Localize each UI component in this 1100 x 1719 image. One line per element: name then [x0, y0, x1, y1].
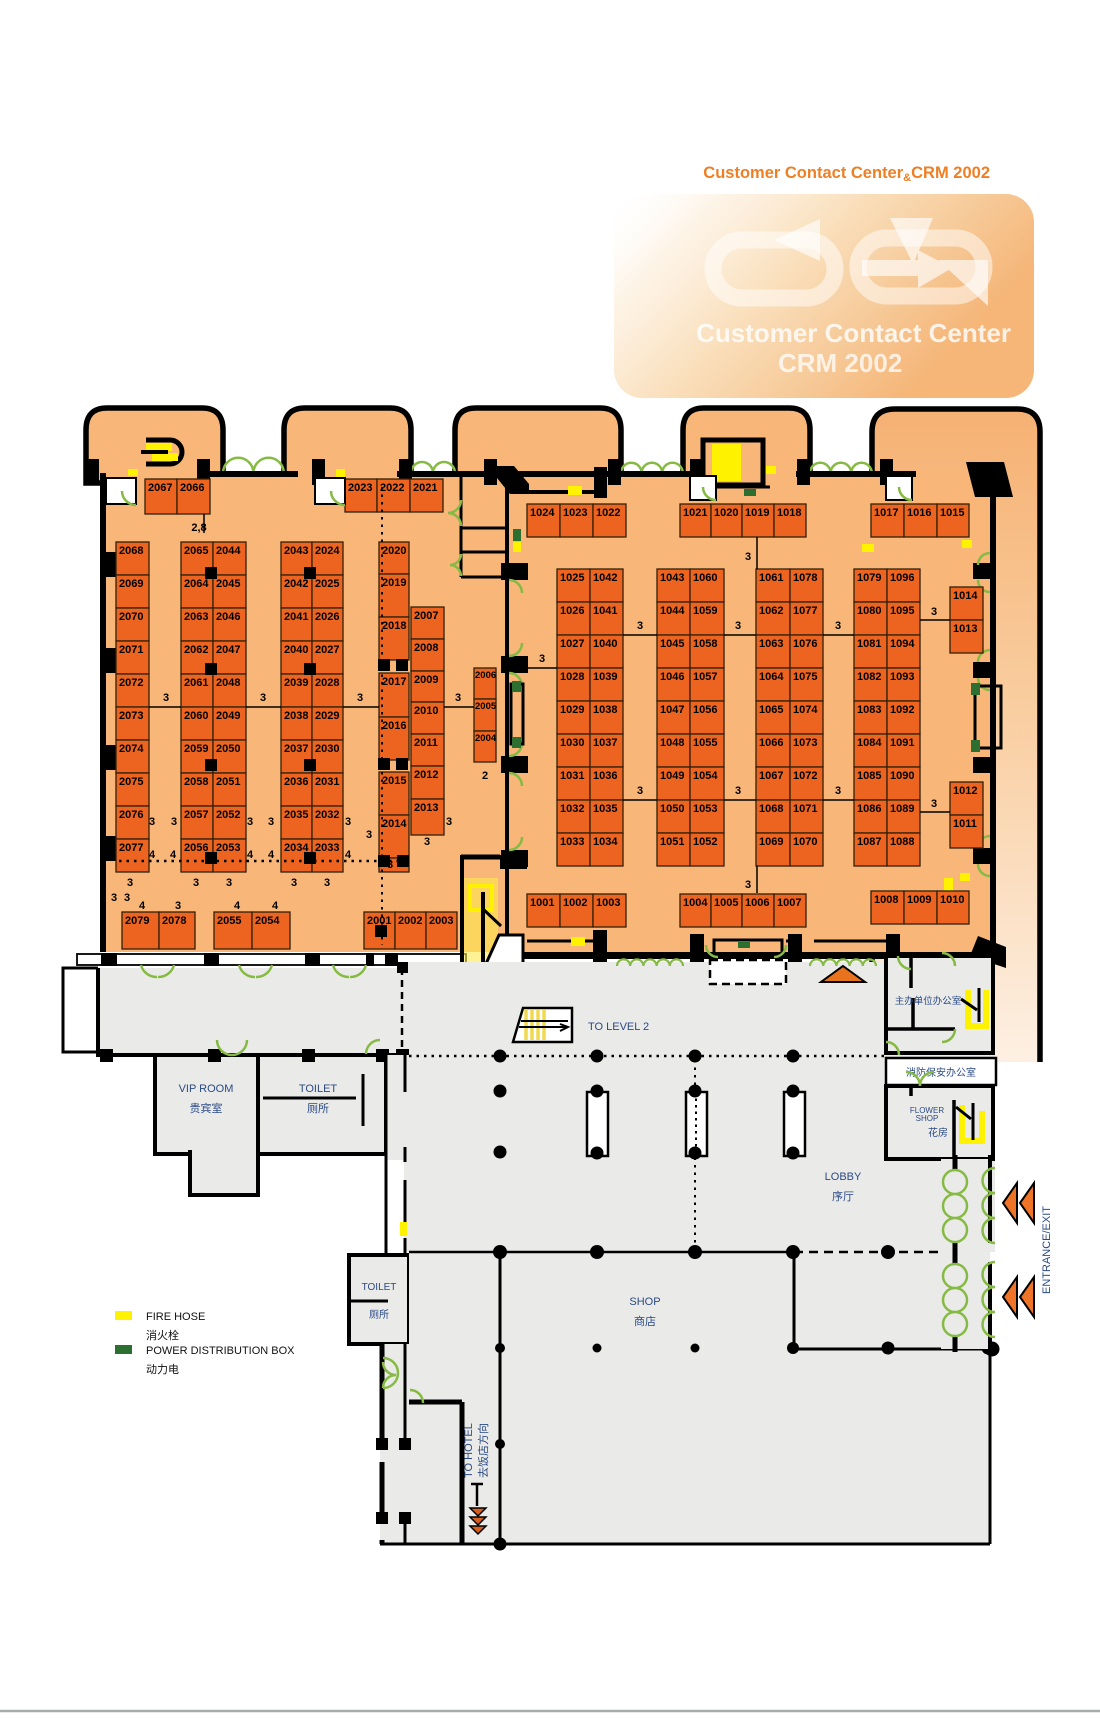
- svg-text:厕所: 厕所: [307, 1102, 329, 1115]
- svg-text:3: 3: [637, 620, 643, 632]
- svg-text:2065: 2065: [184, 545, 208, 557]
- svg-text:2010: 2010: [414, 705, 438, 717]
- svg-text:1041: 1041: [593, 605, 617, 617]
- svg-text:2079: 2079: [125, 915, 149, 927]
- svg-text:2,8: 2,8: [191, 522, 206, 534]
- svg-text:1088: 1088: [890, 836, 914, 848]
- svg-text:1059: 1059: [693, 605, 717, 617]
- svg-text:1060: 1060: [693, 572, 717, 584]
- svg-text:1007: 1007: [777, 897, 801, 909]
- svg-text:4: 4: [345, 849, 352, 861]
- svg-text:1073: 1073: [793, 737, 817, 749]
- svg-text:2017: 2017: [382, 676, 406, 688]
- svg-text:2031: 2031: [315, 776, 339, 788]
- svg-text:2038: 2038: [284, 710, 308, 722]
- svg-text:1075: 1075: [793, 671, 817, 683]
- svg-text:2032: 2032: [315, 809, 339, 821]
- svg-text:2027: 2027: [315, 644, 339, 656]
- svg-text:LOBBY: LOBBY: [825, 1171, 862, 1183]
- svg-text:2024: 2024: [315, 545, 340, 557]
- svg-text:2002: 2002: [398, 915, 422, 927]
- svg-text:3: 3: [387, 859, 393, 871]
- svg-text:2045: 2045: [216, 578, 240, 590]
- svg-text:4: 4: [272, 900, 279, 912]
- svg-text:2039: 2039: [284, 677, 308, 689]
- svg-text:1012: 1012: [953, 785, 977, 797]
- svg-text:2052: 2052: [216, 809, 240, 821]
- svg-text:3: 3: [268, 816, 274, 828]
- svg-text:1094: 1094: [890, 638, 915, 650]
- svg-text:2048: 2048: [216, 677, 240, 689]
- svg-text:3: 3: [637, 785, 643, 797]
- svg-text:2051: 2051: [216, 776, 240, 788]
- svg-text:1085: 1085: [857, 770, 881, 782]
- svg-text:1071: 1071: [793, 803, 817, 815]
- svg-text:1017: 1017: [874, 507, 898, 519]
- svg-text:2068: 2068: [119, 545, 143, 557]
- svg-text:2021: 2021: [413, 482, 437, 494]
- svg-text:厕所: 厕所: [369, 1309, 389, 1321]
- svg-text:2029: 2029: [315, 710, 339, 722]
- svg-text:1009: 1009: [907, 894, 931, 906]
- svg-text:CRM 2002: CRM 2002: [778, 348, 902, 378]
- svg-text:2069: 2069: [119, 578, 143, 590]
- svg-text:1056: 1056: [693, 704, 717, 716]
- svg-text:2003: 2003: [429, 915, 453, 927]
- svg-text:2020: 2020: [382, 545, 406, 557]
- svg-text:1070: 1070: [793, 836, 817, 848]
- svg-text:2018: 2018: [382, 620, 406, 632]
- svg-text:2042: 2042: [284, 578, 308, 590]
- svg-text:2054: 2054: [255, 915, 280, 927]
- svg-text:3: 3: [745, 551, 751, 563]
- svg-text:1036: 1036: [593, 770, 617, 782]
- svg-text:Customer Contact Center&CRM 20: Customer Contact Center&CRM 2002: [703, 164, 990, 184]
- svg-text:1089: 1089: [890, 803, 914, 815]
- svg-text:ENTRANCE/EXIT: ENTRANCE/EXIT: [1041, 1206, 1053, 1294]
- svg-text:1051: 1051: [660, 836, 684, 848]
- svg-text:1008: 1008: [874, 894, 898, 906]
- svg-text:2004: 2004: [475, 733, 497, 744]
- svg-text:1029: 1029: [560, 704, 584, 716]
- svg-text:TOILET: TOILET: [362, 1282, 397, 1293]
- svg-text:1034: 1034: [593, 836, 618, 848]
- svg-text:1010: 1010: [940, 894, 964, 906]
- svg-text:2067: 2067: [148, 482, 172, 494]
- svg-text:2066: 2066: [180, 482, 204, 494]
- svg-text:2043: 2043: [284, 545, 308, 557]
- svg-text:2008: 2008: [414, 642, 438, 654]
- svg-text:TO HOTEL: TO HOTEL: [463, 1423, 475, 1478]
- svg-text:1044: 1044: [660, 605, 685, 617]
- svg-text:1022: 1022: [596, 507, 620, 519]
- svg-text:FIRE HOSE: FIRE HOSE: [146, 1311, 205, 1323]
- svg-text:2050: 2050: [216, 743, 240, 755]
- svg-text:2011: 2011: [414, 737, 438, 749]
- svg-text:3: 3: [324, 877, 330, 889]
- svg-text:4: 4: [139, 900, 146, 912]
- svg-text:2044: 2044: [216, 545, 241, 557]
- svg-text:2064: 2064: [184, 578, 209, 590]
- svg-text:2074: 2074: [119, 743, 144, 755]
- svg-text:2014: 2014: [382, 818, 407, 830]
- svg-text:2040: 2040: [284, 644, 308, 656]
- svg-text:2036: 2036: [284, 776, 308, 788]
- svg-text:1055: 1055: [693, 737, 717, 749]
- svg-text:1046: 1046: [660, 671, 684, 683]
- svg-text:3: 3: [163, 692, 169, 704]
- svg-text:1083: 1083: [857, 704, 881, 716]
- svg-text:贵宾室: 贵宾室: [190, 1101, 223, 1115]
- svg-text:1047: 1047: [660, 704, 684, 716]
- svg-text:1061: 1061: [759, 572, 783, 584]
- svg-text:3: 3: [357, 692, 363, 704]
- svg-text:1076: 1076: [793, 638, 817, 650]
- svg-text:1037: 1037: [593, 737, 617, 749]
- svg-text:2058: 2058: [184, 776, 208, 788]
- svg-text:2016: 2016: [382, 720, 406, 732]
- svg-text:1092: 1092: [890, 704, 914, 716]
- svg-text:2073: 2073: [119, 710, 143, 722]
- svg-text:2015: 2015: [382, 775, 406, 787]
- svg-text:1062: 1062: [759, 605, 783, 617]
- svg-text:3: 3: [127, 877, 133, 889]
- svg-text:2071: 2071: [119, 644, 143, 656]
- svg-text:1078: 1078: [793, 572, 817, 584]
- svg-text:3: 3: [539, 653, 545, 665]
- svg-text:2060: 2060: [184, 710, 208, 722]
- svg-text:1082: 1082: [857, 671, 881, 683]
- svg-text:2022: 2022: [380, 482, 404, 494]
- svg-text:2070: 2070: [119, 611, 143, 623]
- svg-text:2041: 2041: [284, 611, 308, 623]
- svg-text:2007: 2007: [414, 610, 438, 622]
- svg-text:3: 3: [835, 785, 841, 797]
- svg-text:1035: 1035: [593, 803, 617, 815]
- svg-text:2025: 2025: [315, 578, 339, 590]
- svg-text:1049: 1049: [660, 770, 684, 782]
- svg-text:1084: 1084: [857, 737, 882, 749]
- svg-text:3: 3: [345, 816, 351, 828]
- svg-text:1090: 1090: [890, 770, 914, 782]
- svg-text:2: 2: [482, 770, 488, 782]
- svg-text:1005: 1005: [714, 897, 738, 909]
- svg-text:3: 3: [931, 798, 937, 810]
- svg-text:1002: 1002: [563, 897, 587, 909]
- svg-text:3: 3: [193, 877, 199, 889]
- svg-text:1069: 1069: [759, 836, 783, 848]
- svg-text:1042: 1042: [593, 572, 617, 584]
- svg-text:2026: 2026: [315, 611, 339, 623]
- svg-text:1052: 1052: [693, 836, 717, 848]
- svg-text:POWER DISTRIBUTION BOX: POWER DISTRIBUTION BOX: [146, 1345, 295, 1357]
- svg-text:3: 3: [745, 879, 751, 891]
- svg-text:2009: 2009: [414, 674, 438, 686]
- svg-text:1077: 1077: [793, 605, 817, 617]
- svg-text:2062: 2062: [184, 644, 208, 656]
- svg-text:花房: 花房: [928, 1126, 948, 1139]
- svg-text:1006: 1006: [745, 897, 769, 909]
- svg-text:1048: 1048: [660, 737, 684, 749]
- svg-text:序厅: 序厅: [832, 1189, 854, 1203]
- svg-text:4: 4: [268, 849, 275, 861]
- svg-text:1053: 1053: [693, 803, 717, 815]
- svg-text:3: 3: [175, 900, 181, 912]
- svg-text:1096: 1096: [890, 572, 914, 584]
- svg-text:3: 3: [111, 892, 117, 904]
- svg-text:1079: 1079: [857, 572, 881, 584]
- svg-text:1045: 1045: [660, 638, 684, 650]
- svg-text:3: 3: [931, 606, 937, 618]
- svg-text:1063: 1063: [759, 638, 783, 650]
- svg-text:1067: 1067: [759, 770, 783, 782]
- svg-text:1004: 1004: [683, 897, 708, 909]
- svg-text:3: 3: [149, 816, 155, 828]
- svg-text:2023: 2023: [348, 482, 372, 494]
- svg-text:1038: 1038: [593, 704, 617, 716]
- svg-text:1020: 1020: [714, 507, 738, 519]
- svg-text:TOILET: TOILET: [299, 1083, 338, 1095]
- svg-text:1019: 1019: [745, 507, 769, 519]
- svg-text:3: 3: [171, 816, 177, 828]
- svg-text:1001: 1001: [530, 897, 554, 909]
- svg-text:1033: 1033: [560, 836, 584, 848]
- svg-text:3: 3: [446, 816, 452, 828]
- svg-text:2028: 2028: [315, 677, 339, 689]
- svg-text:1043: 1043: [660, 572, 684, 584]
- svg-text:2030: 2030: [315, 743, 339, 755]
- svg-text:1068: 1068: [759, 803, 783, 815]
- svg-text:1095: 1095: [890, 605, 914, 617]
- svg-text:商店: 商店: [634, 1314, 656, 1328]
- svg-text:1093: 1093: [890, 671, 914, 683]
- svg-text:2077: 2077: [119, 842, 143, 854]
- svg-text:2059: 2059: [184, 743, 208, 755]
- svg-text:消火栓: 消火栓: [146, 1328, 179, 1342]
- svg-text:TO LEVEL 2: TO LEVEL 2: [588, 1021, 649, 1033]
- svg-text:1086: 1086: [857, 803, 881, 815]
- svg-text:1025: 1025: [560, 572, 584, 584]
- svg-text:2061: 2061: [184, 677, 208, 689]
- svg-text:主办单位办公室: 主办单位办公室: [895, 995, 962, 1007]
- svg-text:1013: 1013: [953, 623, 977, 635]
- svg-text:1032: 1032: [560, 803, 584, 815]
- svg-text:1024: 1024: [530, 507, 555, 519]
- svg-text:4: 4: [234, 900, 241, 912]
- svg-text:2013: 2013: [414, 802, 438, 814]
- svg-text:1040: 1040: [593, 638, 617, 650]
- svg-text:2019: 2019: [382, 577, 406, 589]
- svg-text:1050: 1050: [660, 803, 684, 815]
- svg-text:3: 3: [260, 692, 266, 704]
- svg-text:1003: 1003: [596, 897, 620, 909]
- svg-text:SHOP: SHOP: [629, 1296, 660, 1308]
- svg-text:1011: 1011: [953, 818, 977, 830]
- svg-text:1027: 1027: [560, 638, 584, 650]
- svg-text:2047: 2047: [216, 644, 240, 656]
- svg-text:1081: 1081: [857, 638, 881, 650]
- svg-text:1015: 1015: [940, 507, 964, 519]
- svg-text:1016: 1016: [907, 507, 931, 519]
- svg-text:3: 3: [735, 785, 741, 797]
- svg-text:2046: 2046: [216, 611, 240, 623]
- svg-text:2037: 2037: [284, 743, 308, 755]
- svg-text:3: 3: [455, 692, 461, 704]
- svg-text:1087: 1087: [857, 836, 881, 848]
- svg-text:2075: 2075: [119, 776, 143, 788]
- svg-text:2057: 2057: [184, 809, 208, 821]
- svg-text:1058: 1058: [693, 638, 717, 650]
- svg-text:2076: 2076: [119, 809, 143, 821]
- svg-text:1014: 1014: [953, 590, 978, 602]
- svg-text:1021: 1021: [683, 507, 707, 519]
- svg-text:2053: 2053: [216, 842, 240, 854]
- svg-text:2055: 2055: [217, 915, 241, 927]
- svg-text:1091: 1091: [890, 737, 914, 749]
- svg-text:4: 4: [247, 849, 254, 861]
- svg-text:1065: 1065: [759, 704, 783, 716]
- svg-text:3: 3: [735, 620, 741, 632]
- svg-text:VIP ROOM: VIP ROOM: [179, 1083, 234, 1095]
- svg-text:1054: 1054: [693, 770, 718, 782]
- svg-text:2033: 2033: [315, 842, 339, 854]
- svg-text:SHOP: SHOP: [916, 1114, 939, 1123]
- svg-text:1030: 1030: [560, 737, 584, 749]
- svg-text:1057: 1057: [693, 671, 717, 683]
- svg-text:1064: 1064: [759, 671, 784, 683]
- svg-text:3: 3: [226, 877, 232, 889]
- svg-text:4: 4: [170, 849, 177, 861]
- svg-text:Customer Contact Center: Customer Contact Center: [696, 318, 1011, 348]
- svg-text:3: 3: [424, 836, 430, 848]
- svg-text:1066: 1066: [759, 737, 783, 749]
- svg-text:3: 3: [124, 892, 130, 904]
- svg-text:2005: 2005: [475, 701, 497, 712]
- svg-text:1023: 1023: [563, 507, 587, 519]
- svg-text:2063: 2063: [184, 611, 208, 623]
- svg-text:1074: 1074: [793, 704, 818, 716]
- svg-text:1039: 1039: [593, 671, 617, 683]
- svg-text:2006: 2006: [475, 670, 496, 681]
- svg-text:1072: 1072: [793, 770, 817, 782]
- svg-text:2078: 2078: [162, 915, 186, 927]
- svg-text:3: 3: [366, 829, 372, 841]
- svg-text:3: 3: [835, 620, 841, 632]
- svg-text:去饭店方向: 去饭店方向: [476, 1423, 490, 1478]
- svg-text:2035: 2035: [284, 809, 308, 821]
- svg-text:4: 4: [149, 849, 156, 861]
- svg-text:2049: 2049: [216, 710, 240, 722]
- svg-text:3: 3: [291, 877, 297, 889]
- svg-text:动力电: 动力电: [146, 1363, 179, 1376]
- svg-text:2072: 2072: [119, 677, 143, 689]
- svg-text:1031: 1031: [560, 770, 584, 782]
- svg-text:2056: 2056: [184, 842, 208, 854]
- svg-text:1028: 1028: [560, 671, 584, 683]
- svg-text:3: 3: [247, 816, 253, 828]
- svg-text:2012: 2012: [414, 769, 438, 781]
- svg-text:1026: 1026: [560, 605, 584, 617]
- svg-text:1080: 1080: [857, 605, 881, 617]
- svg-text:1018: 1018: [777, 507, 801, 519]
